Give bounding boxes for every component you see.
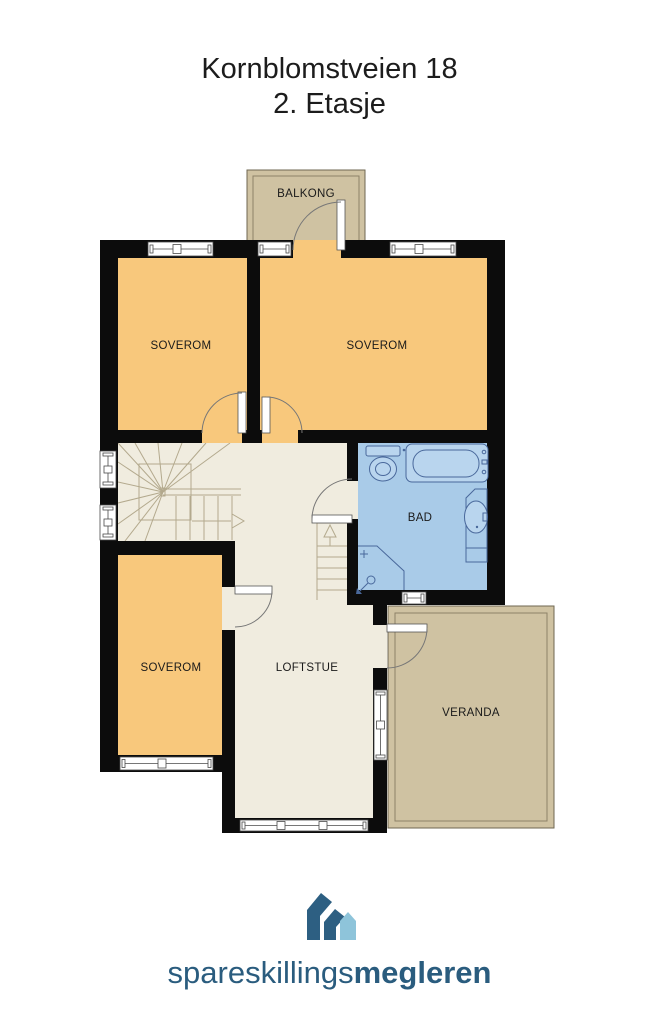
logo-wordmark: spareskillingsmegleren	[0, 955, 659, 991]
floor-plan-drawing: BALKONG SOVEROM SOVEROM BAD SOVEROM LOFT…	[0, 0, 659, 1024]
label-soverom-top-right: SOVEROM	[347, 340, 408, 352]
label-loftstue: LOFTSTUE	[276, 662, 338, 674]
room-balkong	[247, 170, 365, 250]
label-soverom-bottom: SOVEROM	[141, 662, 202, 674]
window	[240, 820, 368, 831]
label-balkong: BALKONG	[277, 188, 335, 200]
window	[100, 451, 116, 488]
logo-houses-icon	[300, 882, 360, 944]
window	[402, 592, 426, 604]
window	[258, 242, 291, 256]
logo-text-bold: megleren	[354, 955, 492, 990]
window	[100, 505, 116, 540]
window	[390, 242, 456, 256]
label-soverom-top-left: SOVEROM	[151, 340, 212, 352]
room-soverom-bottom-floor	[118, 555, 222, 757]
logo-text-regular: spareskillings	[168, 955, 354, 990]
label-veranda: VERANDA	[442, 707, 500, 719]
bathtub-symbol	[406, 444, 488, 482]
window	[120, 757, 213, 770]
label-bad: BAD	[408, 512, 433, 524]
floor-plan-page: Kornblomstveien 18 2. Etasje	[0, 0, 659, 1024]
window	[148, 242, 213, 256]
window	[374, 690, 387, 760]
broker-logo: spareskillingsmegleren	[0, 882, 659, 991]
